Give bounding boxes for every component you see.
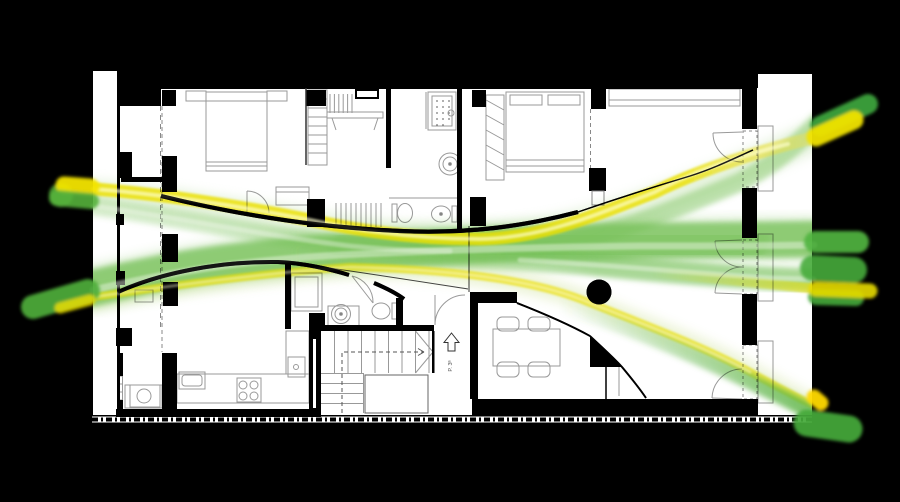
svg-text:P. 3ª: P. 3ª	[447, 359, 454, 371]
